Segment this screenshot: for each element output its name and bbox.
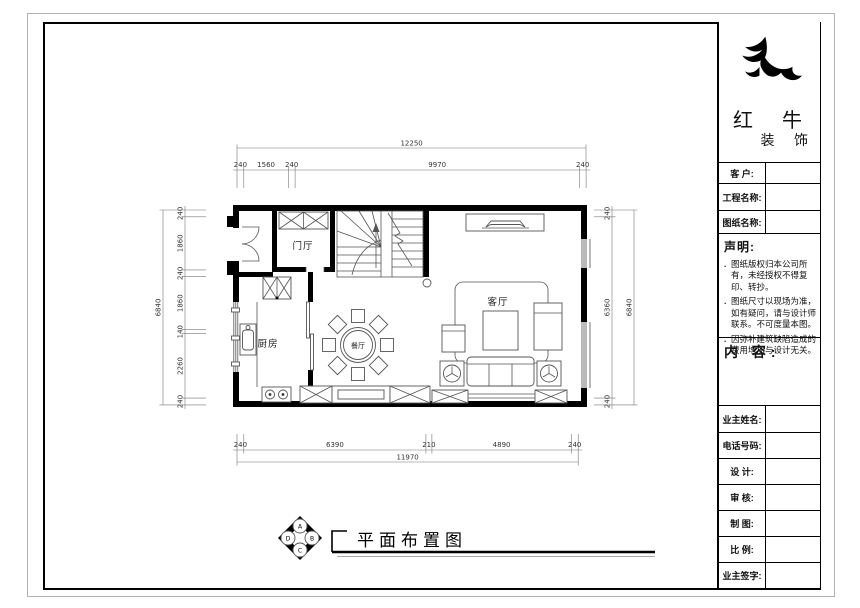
svg-text:D: D <box>286 536 291 543</box>
column <box>423 279 431 287</box>
dim-left: 6840 240 1860 240 1860 140 2260 240 <box>155 206 207 409</box>
project-name-value <box>766 184 820 210</box>
dim-top: 12250 240 1560 240 9970 240 <box>233 140 590 189</box>
field-owner-name: 业主姓名: <box>719 405 820 432</box>
room-label-dining: 餐厅 <box>351 341 365 350</box>
svg-text:240: 240 <box>177 267 185 280</box>
svg-text:240: 240 <box>177 395 185 408</box>
svg-text:240: 240 <box>576 161 589 169</box>
field-draftsman: 制 图: <box>719 510 820 536</box>
field-drawing-name: 图纸名称: <box>719 210 820 233</box>
svg-text:11970: 11970 <box>396 454 418 462</box>
room-label-kitchen: 厨房 <box>257 338 278 350</box>
brand-logo-bull <box>735 32 807 96</box>
svg-text:B: B <box>310 536 314 543</box>
armchair-left <box>442 325 465 352</box>
plan-title-text: 平面布置图 <box>357 531 467 551</box>
drawing-name-label: 图纸名称: <box>719 211 766 233</box>
foyer-cabinet <box>279 212 328 229</box>
kitchen-stove <box>262 387 291 402</box>
project-name-label: 工程名称: <box>719 184 766 210</box>
kitchen-flue-box <box>263 277 291 300</box>
drawing-sheet: 门厅 厨房 餐厅 客厅 12250 240 1560 240 9970 240 … <box>0 0 860 608</box>
floor-plan-drawing: 门厅 厨房 餐厅 客厅 12250 240 1560 240 9970 240 … <box>43 22 717 586</box>
title-block: 红 牛 装 饰 客 户: 工程名称: 图纸名称: 声明: . 图纸版权归本公司所… <box>717 22 820 588</box>
statement-section: 声明: . 图纸版权归本公司所有，未经授权不得复印、转抄。 . 图纸尺寸以现场为… <box>719 233 820 337</box>
sofa <box>467 357 534 386</box>
entry-double-door <box>242 227 259 261</box>
brand-logo-area: 红 牛 装 饰 <box>719 22 820 162</box>
dim-right: 240 6360 240 6840 <box>594 206 638 409</box>
svg-text:1560: 1560 <box>257 161 275 169</box>
svg-text:4890: 4890 <box>493 441 511 449</box>
statement-item: . 图纸版权归本公司所有，未经授权不得复印、转抄。 <box>724 259 817 293</box>
svg-text:2260: 2260 <box>177 357 185 375</box>
svg-text:6840: 6840 <box>155 299 163 317</box>
svg-text:140: 140 <box>177 325 185 338</box>
content-section: 内 容: <box>719 337 820 405</box>
bottom-wall-bays <box>300 386 567 403</box>
svg-text:6360: 6360 <box>604 299 612 317</box>
chaise-right <box>534 303 562 350</box>
dim-bottom: 240 6390 210 4890 240 11970 <box>233 434 582 466</box>
svg-text:12250: 12250 <box>400 140 422 148</box>
svg-text:240: 240 <box>234 161 247 169</box>
stair-up-arrow <box>373 223 380 232</box>
svg-text:1860: 1860 <box>177 234 185 252</box>
statement-title: 声明: <box>724 238 817 255</box>
svg-text:240: 240 <box>177 207 185 220</box>
statement-item: . 图纸尺寸以现场为准，如有疑问，请与设计师联系。不可度量本图。 <box>724 296 817 330</box>
field-designer: 设 计: <box>719 458 820 484</box>
svg-text:240: 240 <box>568 441 581 449</box>
drawing-title: 平面布置图 <box>332 531 655 557</box>
kitchen-sink <box>240 324 256 355</box>
customer-label: 客 户: <box>719 163 766 183</box>
svg-text:9970: 9970 <box>428 161 446 169</box>
field-customer: 客 户: <box>719 162 820 183</box>
interior-walls <box>233 211 429 407</box>
kitchen-sliding-door <box>307 302 314 370</box>
svg-text:240: 240 <box>604 395 612 408</box>
customer-value <box>766 163 820 183</box>
svg-text:240: 240 <box>604 207 612 220</box>
staircase <box>337 211 423 277</box>
brand-suffix: 装 饰 <box>761 130 817 150</box>
field-reviewer: 审 核: <box>719 484 820 510</box>
svg-text:6390: 6390 <box>326 441 344 449</box>
drawing-name-value <box>766 211 820 233</box>
svg-text:6840: 6840 <box>626 299 634 317</box>
field-scale: 比 例: <box>719 536 820 562</box>
field-project-name: 工程名称: <box>719 183 820 210</box>
content-label: 内 容: <box>724 342 817 362</box>
room-label-foyer: 门厅 <box>292 240 313 252</box>
svg-text:1860: 1860 <box>177 294 185 312</box>
elevation-symbol: A B C D <box>278 516 322 560</box>
tv-cabinet <box>466 214 544 231</box>
field-phone: 电话号码: <box>719 432 820 458</box>
side-table-right <box>537 361 561 386</box>
svg-text:240: 240 <box>234 441 247 449</box>
room-label-living: 客厅 <box>487 296 508 308</box>
coffee-table <box>483 311 518 350</box>
brand-name: 红 牛 <box>733 104 814 133</box>
svg-text:210: 210 <box>422 441 435 449</box>
svg-text:240: 240 <box>285 161 298 169</box>
side-table-left <box>440 361 464 386</box>
svg-text:C: C <box>298 548 302 555</box>
field-owner-signature: 业主签字: <box>719 562 820 588</box>
